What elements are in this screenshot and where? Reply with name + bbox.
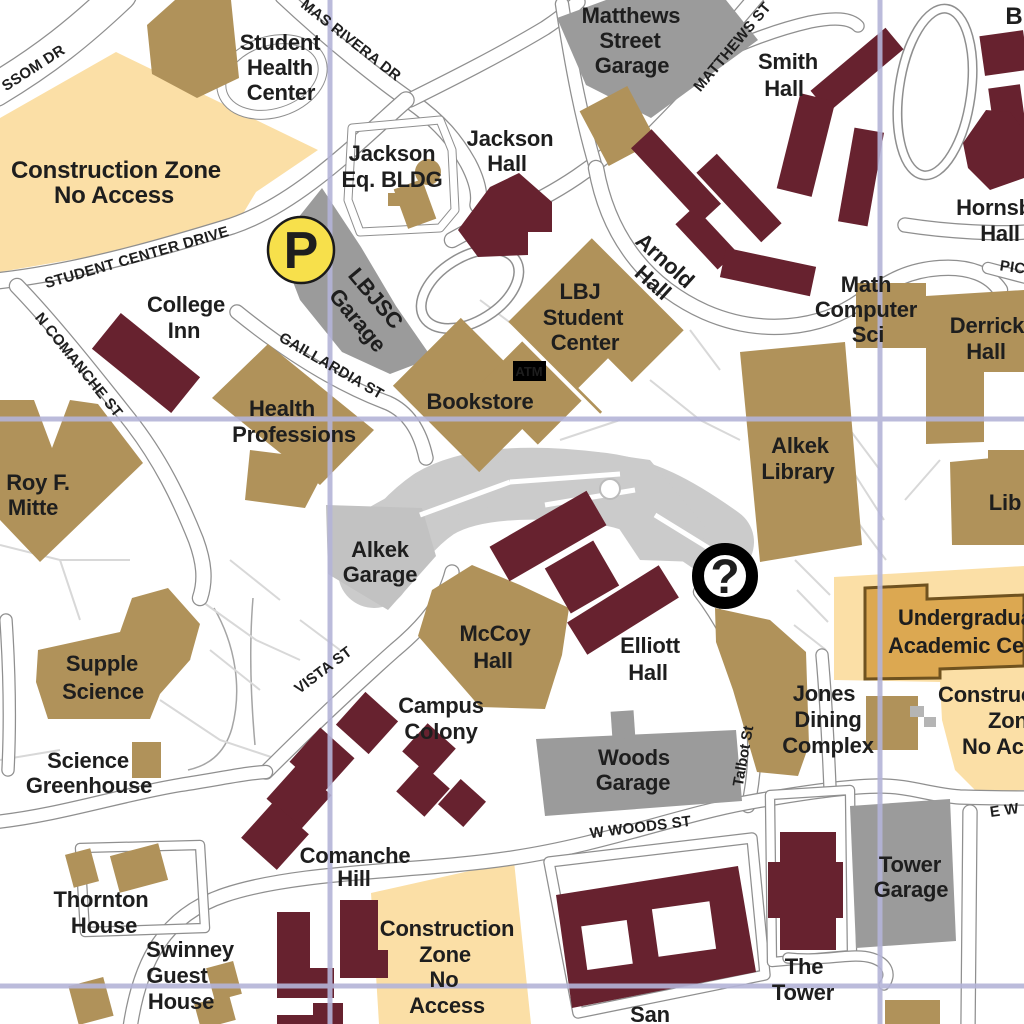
svg-text:Greenhouse: Greenhouse	[26, 773, 152, 798]
svg-text:Comanche: Comanche	[300, 843, 411, 868]
svg-text:Garage: Garage	[596, 770, 671, 795]
svg-text:No Access: No Access	[54, 182, 174, 209]
svg-text:Undergraduate: Undergraduate	[898, 605, 1024, 630]
svg-text:Jackson: Jackson	[349, 141, 436, 166]
svg-text:Alkek: Alkek	[771, 433, 830, 458]
svg-text:Center: Center	[247, 80, 316, 105]
svg-text:Matthews: Matthews	[582, 3, 681, 28]
svg-text:Science: Science	[47, 748, 129, 773]
svg-text:College: College	[147, 292, 225, 317]
svg-text:No Access: No Access	[962, 734, 1024, 759]
svg-text:San: San	[630, 1002, 670, 1024]
svg-text:The: The	[785, 954, 824, 979]
svg-text:Smith: Smith	[758, 49, 818, 74]
svg-text:Construction: Construction	[938, 682, 1024, 707]
svg-text:Hall: Hall	[764, 76, 804, 101]
svg-text:Hall: Hall	[980, 221, 1020, 246]
svg-text:Jones: Jones	[793, 681, 856, 706]
svg-text:Campus: Campus	[398, 693, 484, 718]
svg-text:Construction Zone: Construction Zone	[11, 157, 221, 184]
svg-text:Jackson: Jackson	[467, 126, 554, 151]
svg-text:Street: Street	[599, 28, 661, 53]
svg-text:Alkek: Alkek	[351, 537, 410, 562]
svg-text:Tower: Tower	[772, 980, 835, 1005]
svg-text:?: ?	[710, 551, 739, 604]
svg-text:Health: Health	[249, 396, 315, 421]
svg-text:Hall: Hall	[966, 339, 1006, 364]
svg-text:Thornton: Thornton	[54, 887, 149, 912]
svg-text:Lib: Lib	[989, 490, 1021, 515]
svg-text:Bookstore: Bookstore	[427, 389, 534, 414]
svg-text:House: House	[148, 989, 214, 1014]
svg-text:Zone: Zone	[988, 708, 1024, 733]
svg-text:Garage: Garage	[595, 53, 670, 78]
svg-text:Elliott: Elliott	[620, 633, 681, 658]
svg-text:Library: Library	[761, 459, 835, 484]
svg-text:Hall: Hall	[628, 660, 668, 685]
svg-text:LBJ: LBJ	[560, 279, 601, 304]
svg-text:McCoy: McCoy	[459, 621, 531, 646]
svg-text:No: No	[430, 967, 459, 992]
svg-text:ATM: ATM	[515, 364, 542, 379]
svg-text:House: House	[71, 913, 137, 938]
svg-text:Health: Health	[247, 55, 313, 80]
svg-text:Sci: Sci	[852, 322, 884, 347]
svg-text:Math: Math	[841, 272, 892, 297]
svg-text:Center: Center	[551, 330, 620, 355]
svg-text:Dining: Dining	[794, 707, 861, 732]
svg-text:Garage: Garage	[343, 562, 418, 587]
svg-text:P: P	[284, 222, 319, 280]
svg-text:Derrick: Derrick	[950, 313, 1024, 338]
svg-text:Mitte: Mitte	[8, 495, 58, 520]
svg-text:PIC: PIC	[999, 257, 1024, 277]
svg-text:B: B	[1005, 3, 1022, 30]
svg-text:Woods: Woods	[598, 745, 670, 770]
svg-text:Access: Access	[409, 993, 485, 1018]
svg-text:Roy F.: Roy F.	[6, 470, 70, 495]
svg-text:Professions: Professions	[232, 422, 356, 447]
svg-text:Hall: Hall	[487, 151, 527, 176]
svg-text:Swinney: Swinney	[146, 937, 235, 962]
svg-text:Complex: Complex	[782, 733, 874, 758]
svg-text:Student: Student	[543, 305, 624, 330]
svg-text:Colony: Colony	[404, 719, 478, 744]
svg-text:Hill: Hill	[337, 866, 370, 891]
svg-text:Academic Center: Academic Center	[888, 633, 1024, 658]
svg-text:Garage: Garage	[874, 877, 949, 902]
svg-text:Eq. BLDG: Eq. BLDG	[341, 167, 442, 192]
svg-text:Computer: Computer	[815, 297, 918, 322]
svg-text:Hall: Hall	[473, 648, 513, 673]
svg-text:Hornsby: Hornsby	[956, 195, 1024, 220]
svg-text:Construction: Construction	[380, 916, 514, 941]
svg-text:Inn: Inn	[168, 318, 200, 343]
svg-text:Zone: Zone	[419, 942, 471, 967]
svg-text:Student: Student	[240, 30, 321, 55]
svg-text:Guest: Guest	[146, 963, 208, 988]
svg-text:Tower: Tower	[879, 852, 942, 877]
svg-text:Supple: Supple	[66, 651, 138, 676]
svg-text:Science: Science	[62, 679, 144, 704]
